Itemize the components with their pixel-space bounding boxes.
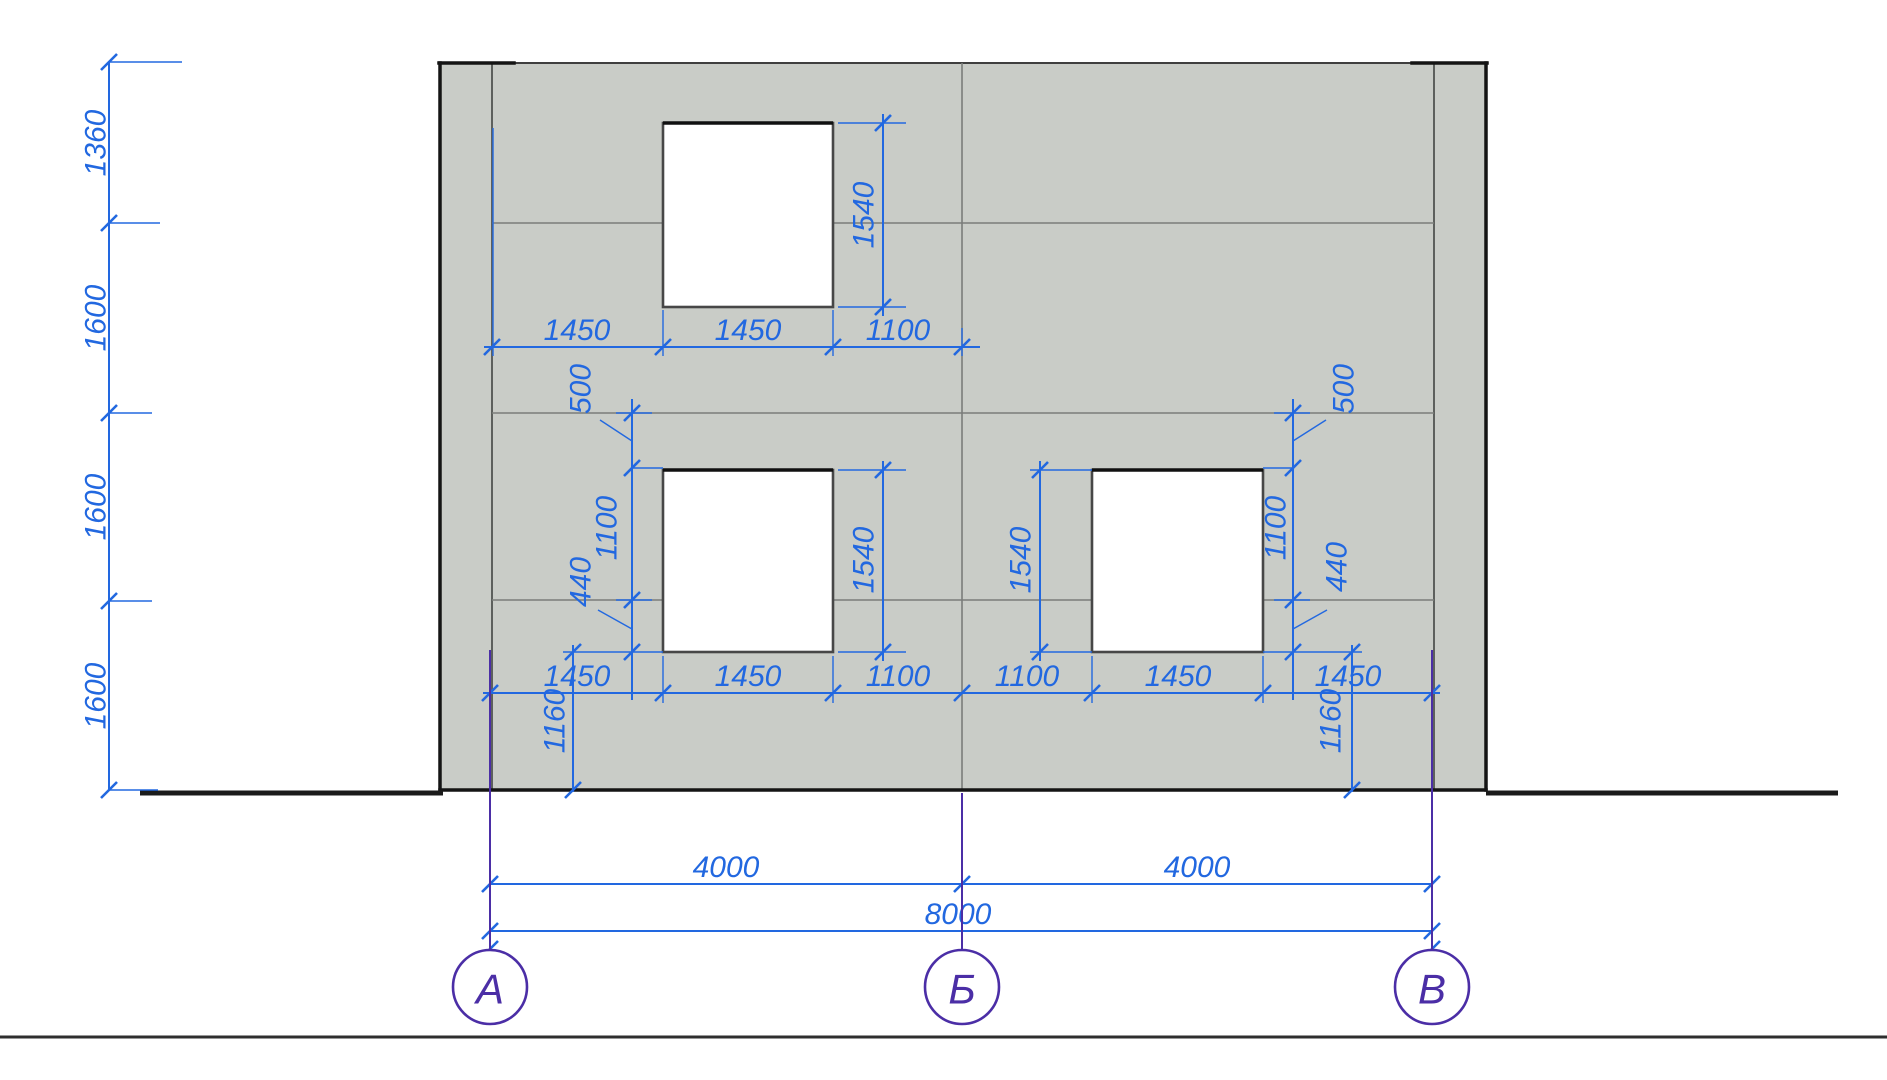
dim-right-sill-1160: 1160 bbox=[1315, 688, 1348, 753]
dim-upper-1450b: 1450 bbox=[715, 314, 782, 347]
axis-letter-b: Б bbox=[948, 966, 975, 1013]
dim-upper-1100: 1100 bbox=[866, 314, 931, 347]
dim-left-head-1100: 1100 bbox=[591, 495, 624, 560]
dim-span-4000b: 4000 bbox=[1164, 851, 1231, 884]
dim-right-lintel-500: 500 bbox=[1328, 364, 1361, 414]
window-lower-right bbox=[1092, 470, 1263, 652]
dim-upper-1450a: 1450 bbox=[544, 314, 611, 347]
dim-bottom-1100b: 1100 bbox=[995, 660, 1060, 693]
dim-left-band-440: 440 bbox=[565, 557, 598, 607]
dim-bottom-1450d: 1450 bbox=[1315, 660, 1382, 693]
dim-span-4000a: 4000 bbox=[693, 851, 760, 884]
dim-winh-upper: 1540 bbox=[848, 181, 881, 248]
dim-bottom-1450b: 1450 bbox=[715, 660, 782, 693]
dim-winh-lower-right: 1540 bbox=[1005, 526, 1038, 593]
elevation-drawing: 1360 1600 1600 1600 1450 1450 1100 1540 … bbox=[0, 0, 1887, 1080]
dim-right-band-440: 440 bbox=[1321, 542, 1354, 592]
dim-chain-left: 1360 1600 1600 1600 bbox=[80, 54, 183, 798]
window-upper bbox=[663, 123, 833, 307]
window-lower-left bbox=[663, 470, 833, 652]
dim-left-lintel-500: 500 bbox=[565, 364, 598, 414]
dim-winh-lower-left: 1540 bbox=[848, 526, 881, 593]
dim-total-8000: 8000 bbox=[925, 898, 992, 931]
dim-bottom-1450a: 1450 bbox=[544, 660, 611, 693]
dim-right-head-1100: 1100 bbox=[1260, 495, 1293, 560]
dim-left-1600b: 1600 bbox=[80, 473, 113, 540]
axis-letter-a: А bbox=[473, 966, 504, 1013]
dim-left-1600a: 1600 bbox=[80, 284, 113, 351]
dim-left-1360: 1360 bbox=[80, 109, 113, 176]
dim-left-sill-1160: 1160 bbox=[539, 688, 572, 753]
dim-bottom-1100a: 1100 bbox=[866, 660, 931, 693]
drawing-sheet: 1360 1600 1600 1600 1450 1450 1100 1540 … bbox=[0, 0, 1887, 1080]
axis-letter-v: В bbox=[1418, 966, 1446, 1013]
dim-bottom-1450c: 1450 bbox=[1145, 660, 1212, 693]
dim-left-1600c: 1600 bbox=[80, 662, 113, 729]
